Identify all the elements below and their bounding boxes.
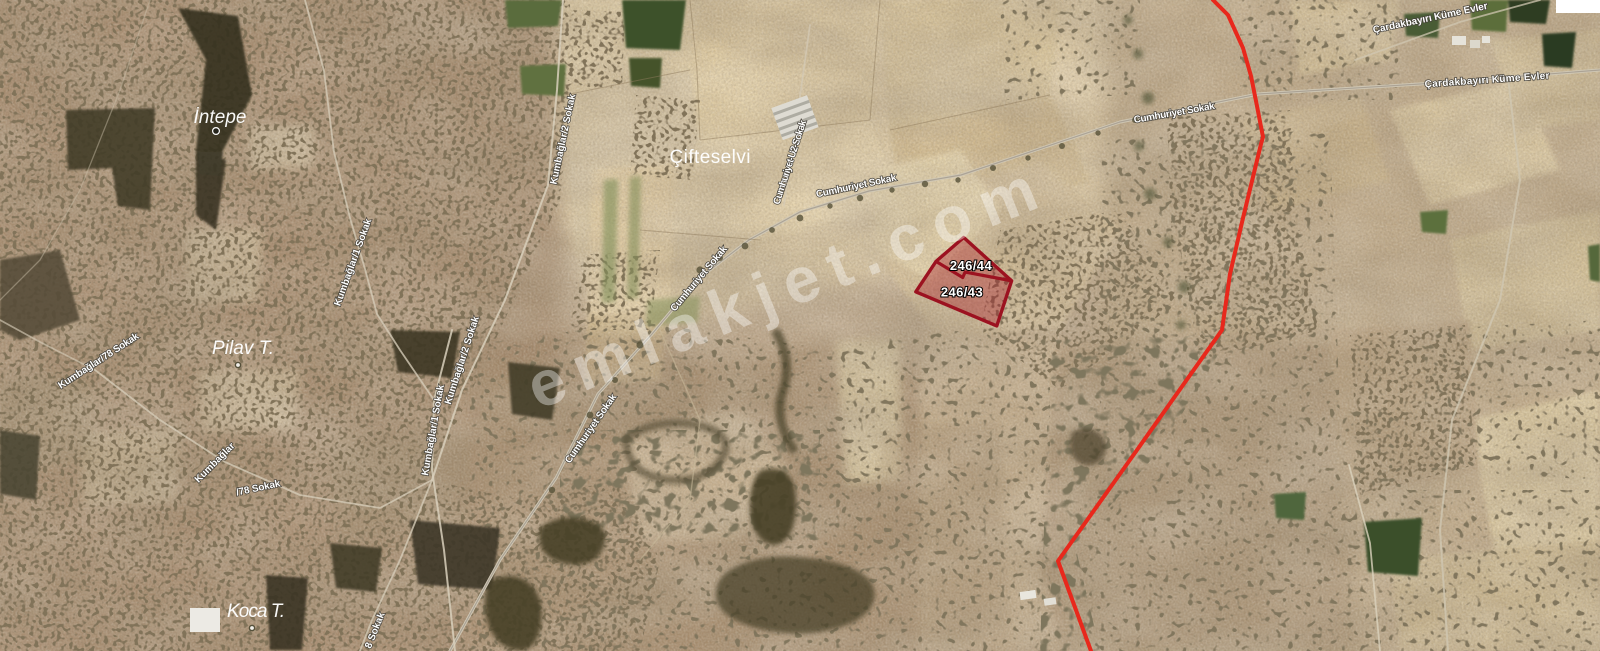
svg-text:Koca T.: Koca T. <box>227 601 285 622</box>
svg-text:246/43: 246/43 <box>941 285 983 300</box>
svg-text:İntepe: İntepe <box>194 107 247 128</box>
svg-text:246/44: 246/44 <box>950 258 993 273</box>
svg-text:Pilav T.: Pilav T. <box>212 338 274 359</box>
svg-text:Çifteselvi: Çifteselvi <box>670 147 751 168</box>
